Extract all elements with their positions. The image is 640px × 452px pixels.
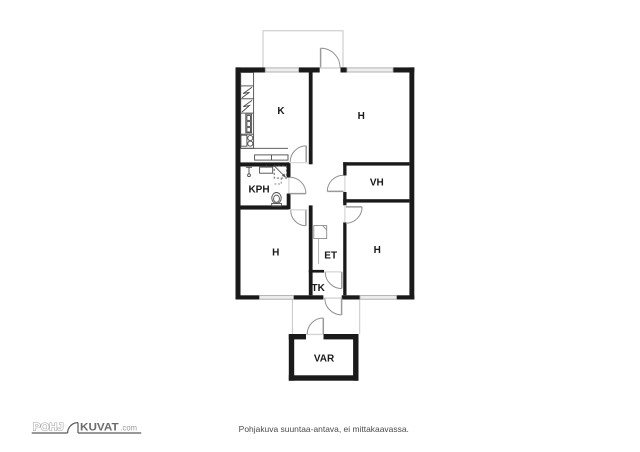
svg-text:H: H bbox=[374, 245, 381, 256]
svg-text:POHJ: POHJ bbox=[33, 422, 64, 434]
svg-text:KPH: KPH bbox=[248, 185, 269, 196]
svg-text:K: K bbox=[277, 106, 285, 117]
svg-text:ET: ET bbox=[324, 251, 337, 262]
svg-text:KUVAT: KUVAT bbox=[80, 422, 119, 434]
svg-text:VAR: VAR bbox=[314, 354, 335, 365]
svg-text:.com: .com bbox=[120, 424, 137, 433]
svg-text:TK: TK bbox=[312, 283, 326, 294]
svg-text:H: H bbox=[358, 111, 365, 122]
svg-text:H: H bbox=[272, 248, 279, 259]
svg-text:VH: VH bbox=[370, 177, 384, 188]
svg-text:Pohjakuva suuntaa-antava, ei m: Pohjakuva suuntaa-antava, ei mittakaavas… bbox=[239, 424, 409, 434]
